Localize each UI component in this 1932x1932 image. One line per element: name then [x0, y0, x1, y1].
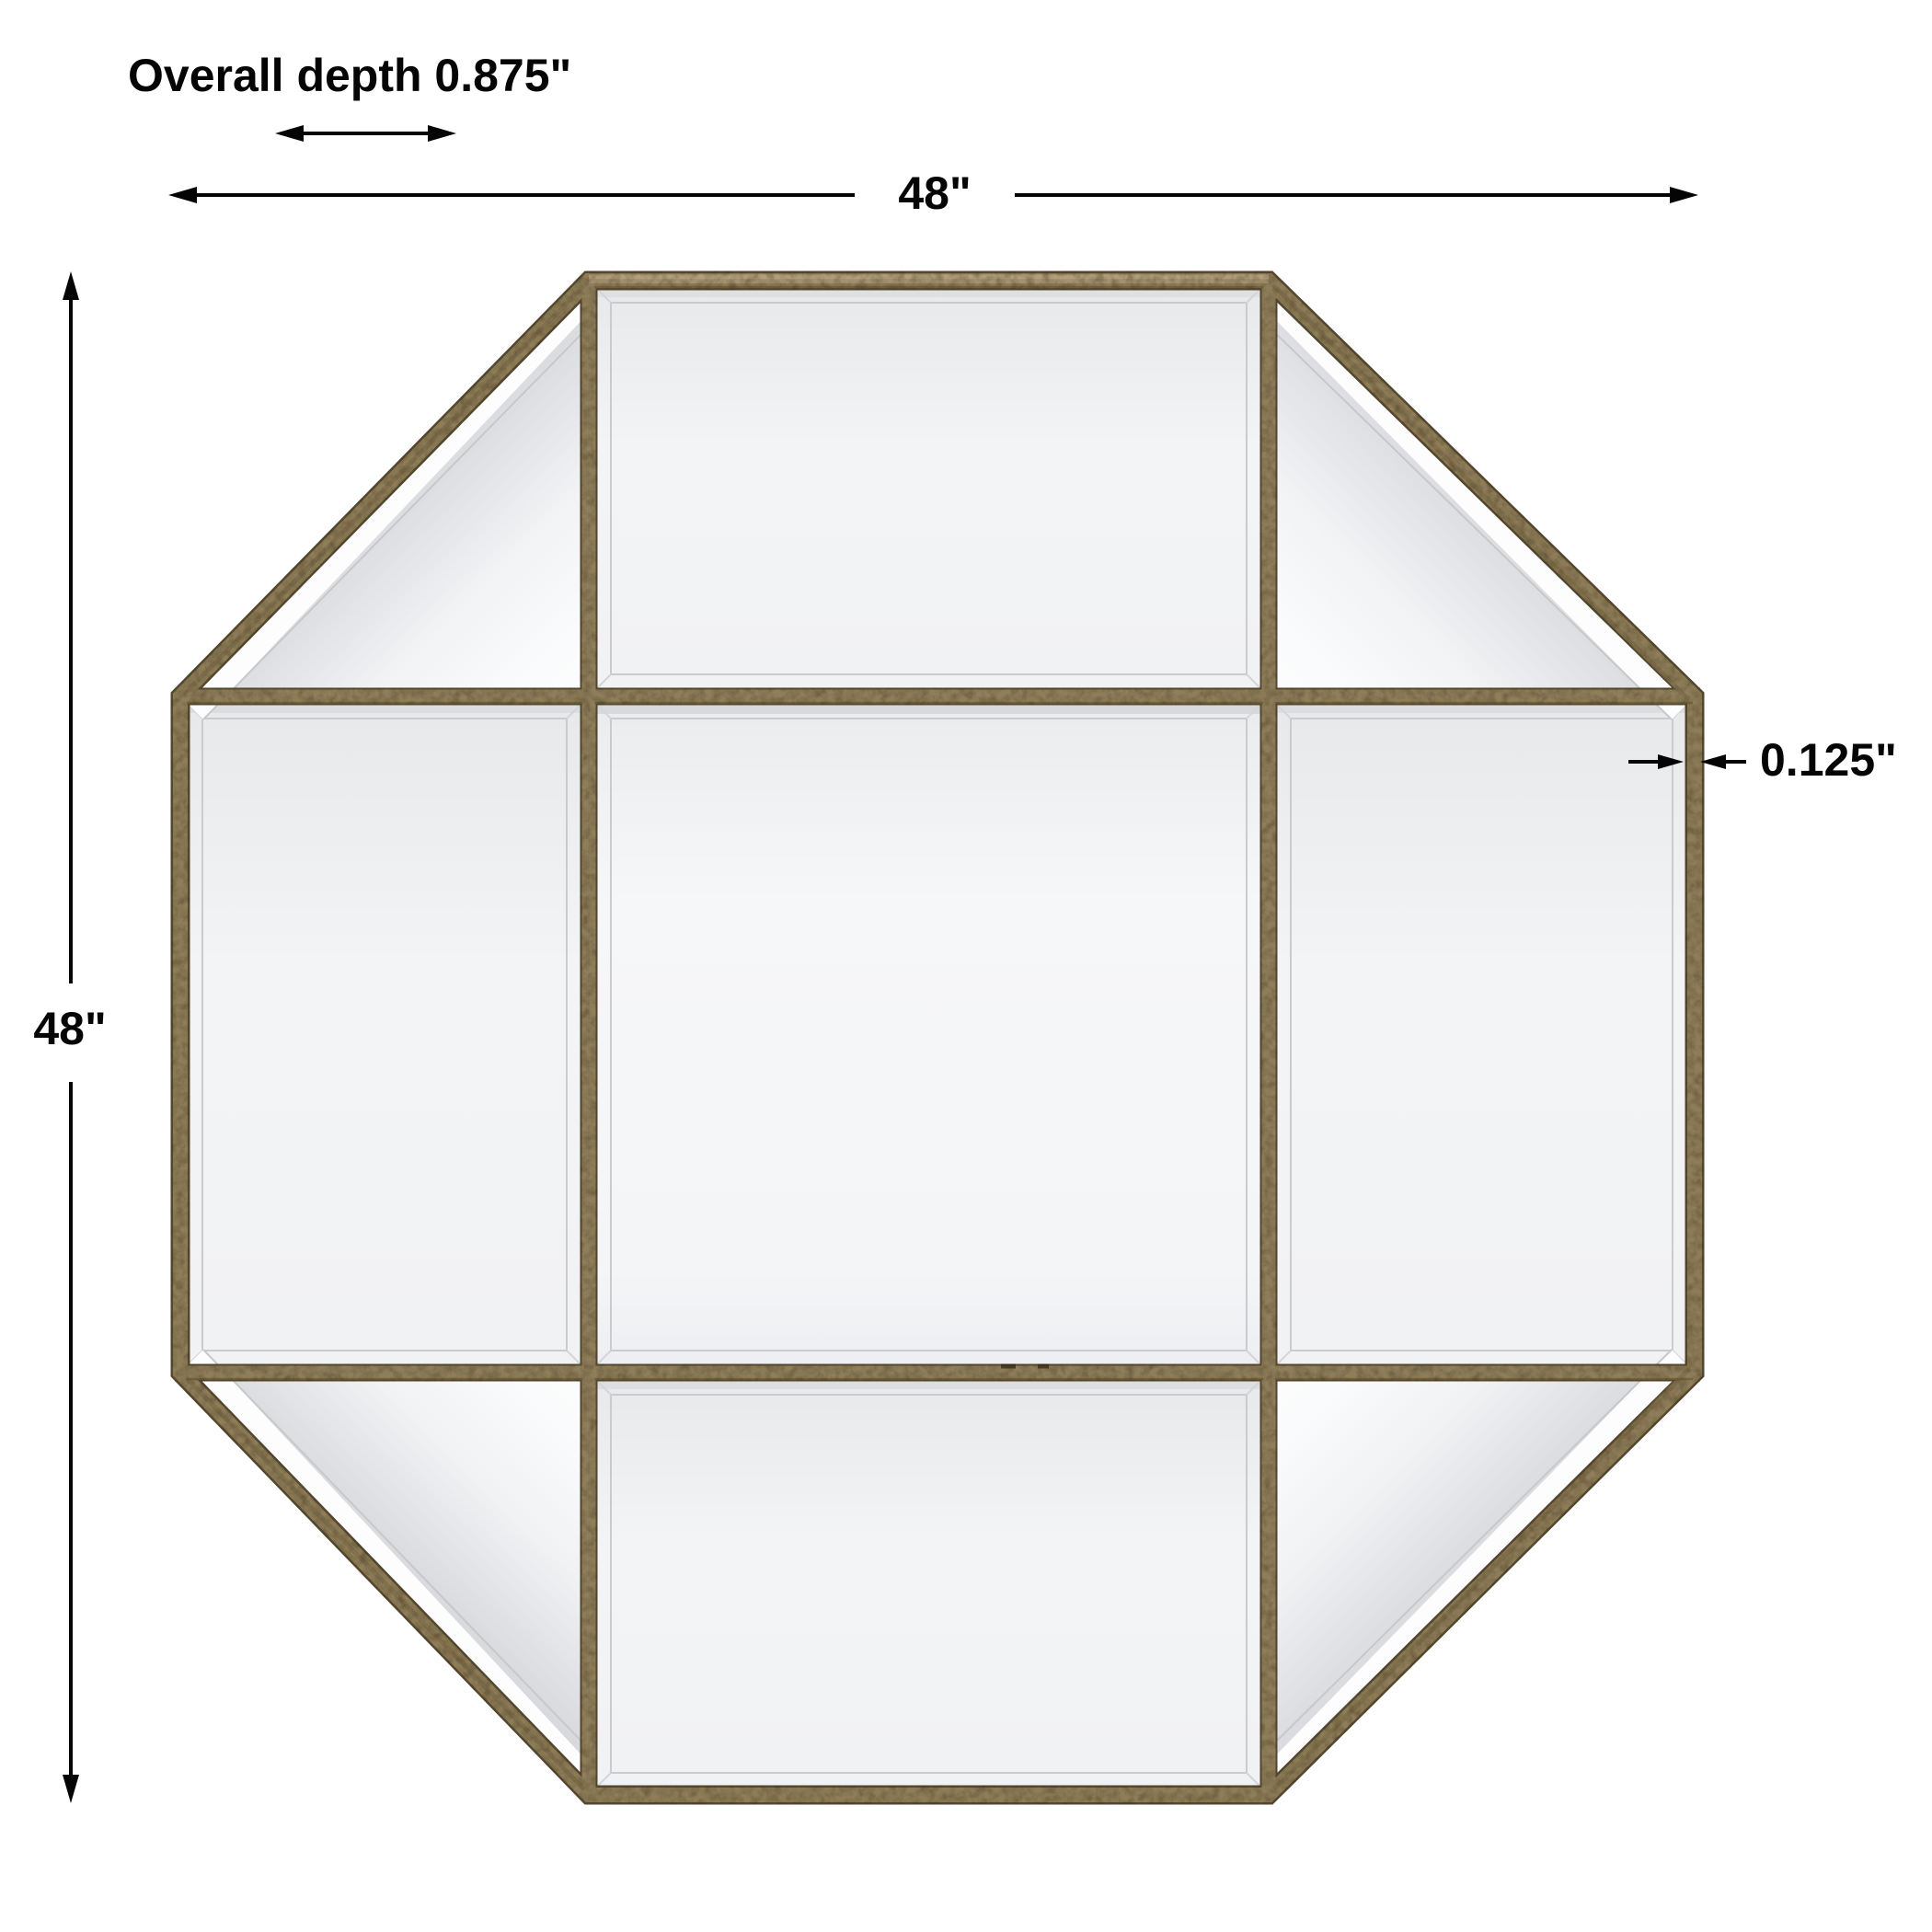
- svg-text:48": 48": [33, 1003, 106, 1054]
- svg-text:Overall depth 0.875": Overall depth 0.875": [128, 50, 571, 101]
- svg-text:48": 48": [898, 167, 971, 219]
- svg-text:0.125": 0.125": [1760, 734, 1897, 786]
